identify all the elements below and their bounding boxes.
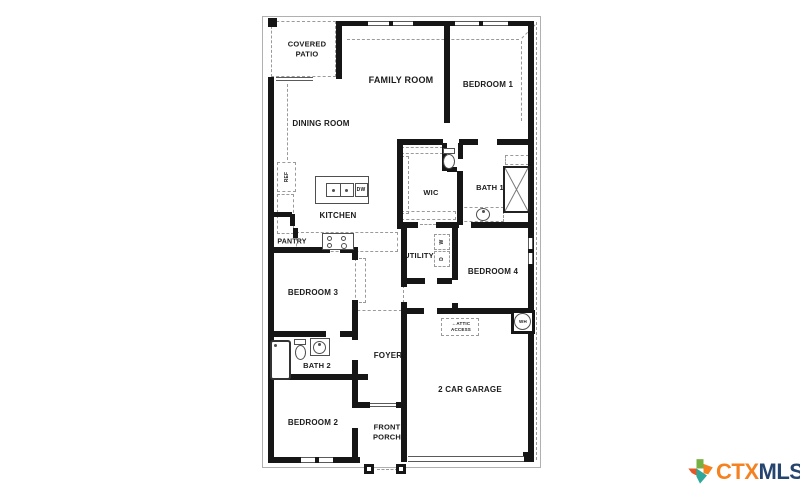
room-label-utility: UTILITY bbox=[404, 251, 434, 261]
stove-burner bbox=[341, 243, 347, 249]
window bbox=[370, 403, 396, 407]
stove-burner bbox=[327, 236, 332, 241]
wall bbox=[352, 428, 358, 462]
room-label-pantry: PANTRY bbox=[277, 237, 306, 246]
room-label-covered-patio: COVEREDPATIO bbox=[288, 39, 327, 59]
window-mullion bbox=[315, 457, 319, 463]
wall bbox=[444, 21, 450, 123]
wic-shelf bbox=[401, 147, 443, 154]
faucet-dot bbox=[482, 210, 485, 213]
room-label-garage: 2 CAR GARAGE bbox=[438, 385, 502, 395]
eave-line bbox=[536, 22, 537, 460]
wall bbox=[458, 143, 463, 159]
texas-icon bbox=[686, 458, 714, 486]
linen-shelf bbox=[505, 155, 529, 165]
dryer-label: D bbox=[439, 257, 446, 261]
wall bbox=[397, 139, 403, 229]
dishwasher-label: DW bbox=[357, 187, 366, 194]
wall bbox=[352, 360, 358, 406]
faucet-dot bbox=[332, 189, 335, 192]
eave-line bbox=[262, 16, 263, 468]
window-mullion bbox=[389, 21, 393, 26]
floor-plan: COVEREDPATIO FAMILY ROOM BEDROOM 1 DININ… bbox=[0, 0, 800, 500]
wall bbox=[268, 18, 277, 27]
wall bbox=[523, 452, 534, 462]
wall bbox=[268, 247, 330, 253]
wall bbox=[452, 222, 458, 280]
wall bbox=[290, 214, 295, 226]
wall bbox=[401, 278, 425, 284]
toilet-icon bbox=[443, 154, 455, 169]
stove-burner bbox=[341, 236, 346, 241]
window bbox=[408, 456, 524, 462]
wall bbox=[437, 278, 452, 284]
window bbox=[276, 77, 313, 81]
logo-mls-text: MLS bbox=[759, 459, 800, 485]
wall bbox=[397, 139, 443, 145]
faucet-dot bbox=[345, 189, 348, 192]
porch-post bbox=[396, 464, 406, 474]
ceiling-line bbox=[377, 469, 398, 470]
room-label-bath-2: BATH 2 bbox=[303, 361, 331, 371]
ceiling-line bbox=[420, 224, 436, 225]
range-icon bbox=[322, 233, 354, 250]
ceiling-line bbox=[403, 285, 404, 303]
wall bbox=[471, 222, 534, 228]
window-mullion bbox=[479, 21, 483, 26]
wall bbox=[268, 77, 274, 462]
ceiling-line bbox=[521, 41, 522, 121]
refrigerator-label: REF bbox=[284, 172, 291, 183]
wall bbox=[268, 212, 292, 217]
wall bbox=[401, 313, 407, 462]
room-label-bedroom-2: BEDROOM 2 bbox=[288, 418, 338, 428]
stove-burner bbox=[327, 243, 332, 248]
wall bbox=[352, 300, 358, 340]
ceiling-line bbox=[352, 310, 402, 311]
wall bbox=[497, 139, 534, 145]
wall bbox=[268, 331, 326, 337]
toilet-icon bbox=[295, 345, 306, 360]
wall bbox=[336, 21, 342, 79]
window-mullion bbox=[528, 249, 533, 253]
wic-shelf bbox=[401, 211, 456, 220]
eave-line bbox=[262, 16, 540, 17]
wall bbox=[396, 402, 404, 408]
ctxmls-logo: CTXMLS bbox=[686, 452, 800, 492]
porch-post bbox=[364, 464, 374, 474]
ceiling-line bbox=[347, 39, 519, 40]
floorplan-image: COVEREDPATIO FAMILY ROOM BEDROOM 1 DININ… bbox=[0, 0, 800, 500]
water-heater-label: WH bbox=[519, 319, 527, 325]
room-label-bedroom-1: BEDROOM 1 bbox=[463, 80, 513, 90]
eave-line bbox=[540, 16, 541, 468]
wall bbox=[457, 171, 463, 225]
room-label-wic: WIC bbox=[423, 188, 438, 198]
room-label-dining-room: DINING ROOM bbox=[292, 119, 349, 129]
shower-icon bbox=[503, 166, 530, 213]
logo-ctx-text: CTX bbox=[716, 459, 759, 485]
washer-label: W bbox=[439, 240, 446, 245]
room-label-bedroom-3: BEDROOM 3 bbox=[288, 288, 338, 298]
room-label-bedroom-4: BEDROOM 4 bbox=[468, 267, 518, 277]
bedroom3-closet bbox=[355, 258, 366, 303]
room-label-kitchen: KITCHEN bbox=[320, 211, 357, 221]
room-label-front-porch: FRONTPORCH bbox=[373, 422, 401, 442]
wall bbox=[340, 331, 352, 337]
ceiling-line bbox=[287, 84, 288, 160]
faucet-dot bbox=[318, 343, 321, 346]
attic-access-label: ←ATTIC ACCESS bbox=[451, 321, 471, 333]
faucet-dot bbox=[274, 344, 277, 347]
room-label-bath-1: BATH 1 bbox=[476, 183, 504, 193]
room-label-foyer: FOYER bbox=[374, 351, 403, 361]
room-label-family-room: FAMILY ROOM bbox=[369, 75, 434, 87]
